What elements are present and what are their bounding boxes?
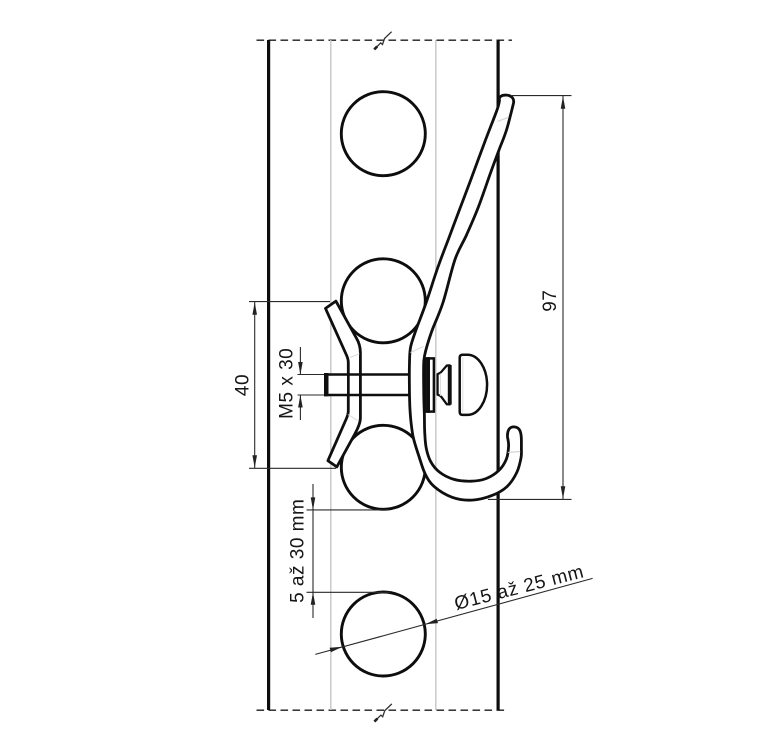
svg-text:M5 x 30: M5 x 30 — [277, 348, 298, 419]
svg-text:97: 97 — [540, 290, 561, 312]
svg-text:40: 40 — [232, 374, 253, 396]
svg-text:5 až 30 mm: 5 až 30 mm — [287, 499, 308, 603]
